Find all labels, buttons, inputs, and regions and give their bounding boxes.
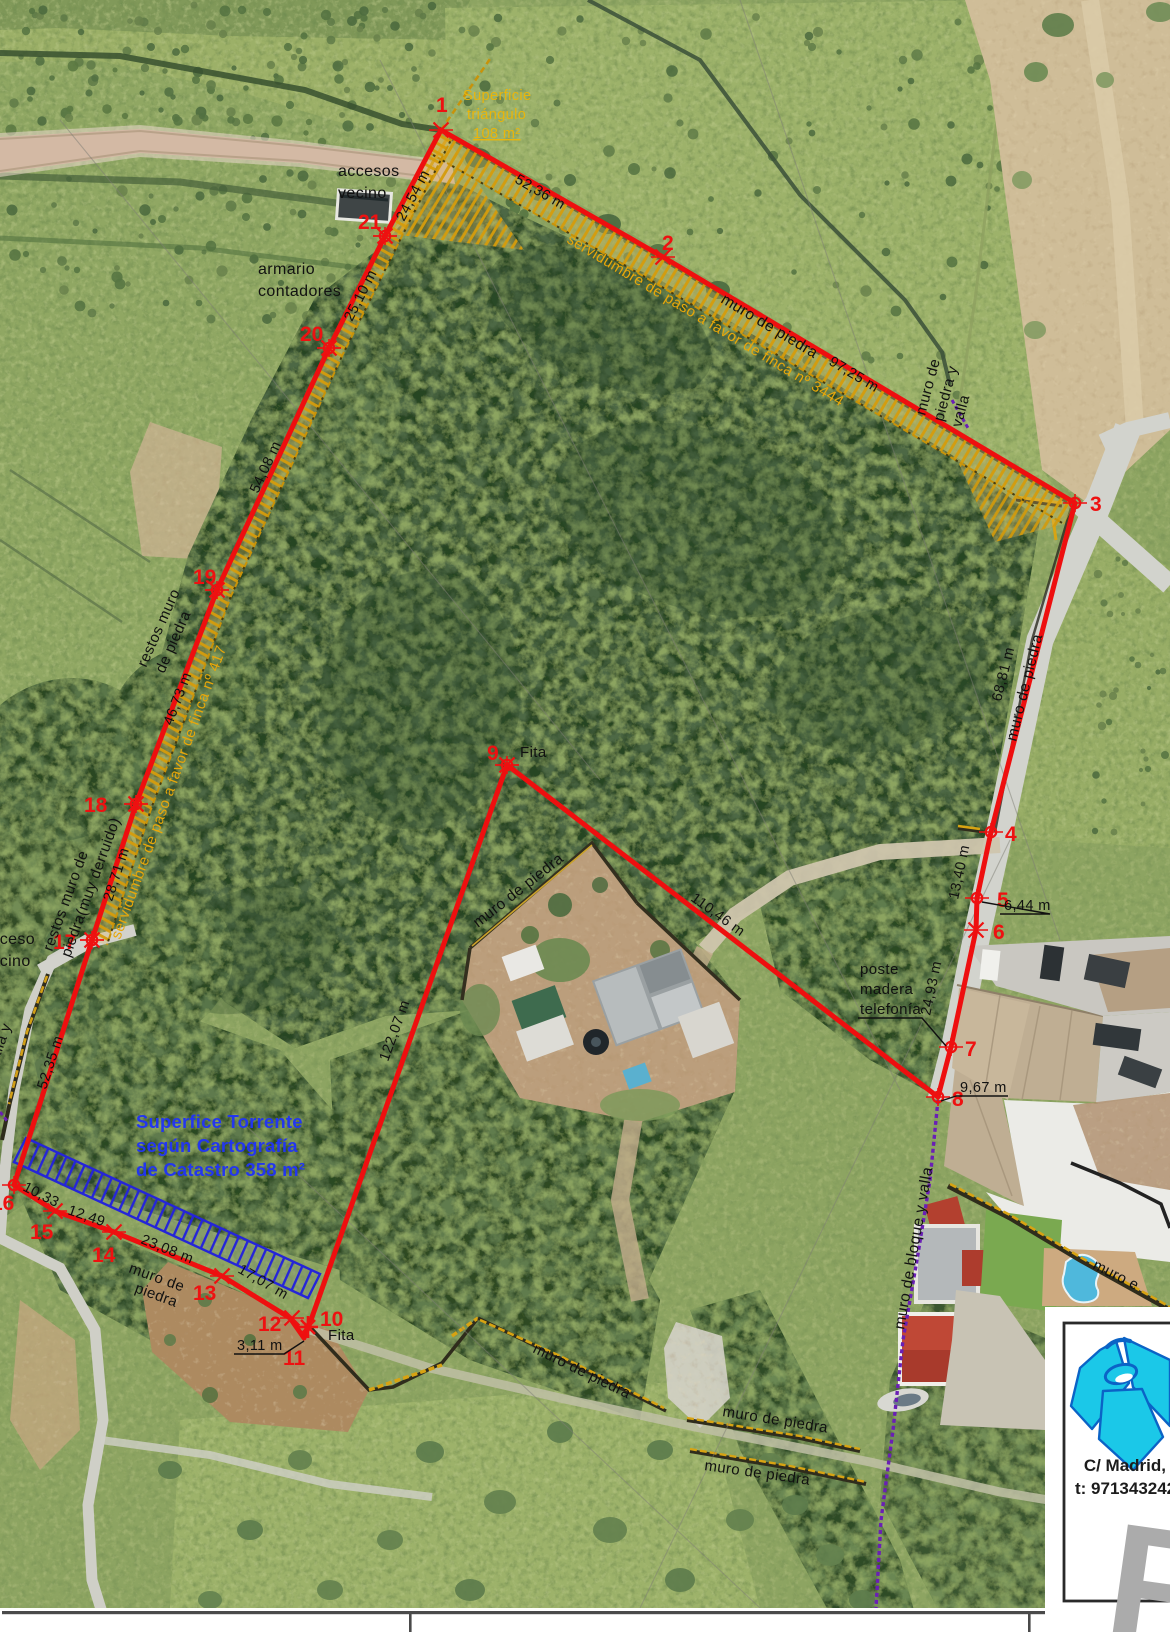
svg-text:de Catastro 358 m²: de Catastro 358 m² [136, 1159, 305, 1180]
svg-text:Fita: Fita [328, 1327, 355, 1344]
svg-text:vecino: vecino [338, 185, 387, 202]
svg-text:según Cartografía: según Cartografía [136, 1135, 298, 1156]
svg-text:13: 13 [193, 1282, 216, 1305]
svg-text:triángulo: triángulo [467, 107, 526, 123]
svg-text:contadores: contadores [258, 283, 341, 300]
svg-text:20: 20 [300, 323, 323, 346]
svg-text:3,11 m: 3,11 m [237, 1338, 283, 1354]
svg-text:Superfice Torrente: Superfice Torrente [136, 1111, 303, 1132]
svg-text:vecino: vecino [0, 953, 31, 970]
svg-text:1: 1 [436, 94, 448, 117]
svg-text:6: 6 [993, 921, 1005, 944]
svg-text:108 m²: 108 m² [473, 126, 521, 142]
svg-text:14: 14 [92, 1244, 116, 1267]
svg-text:acceso: acceso [0, 931, 35, 948]
svg-text:15: 15 [30, 1221, 54, 1244]
svg-text:C/ Madrid,: C/ Madrid, [1084, 1456, 1166, 1475]
svg-text:18: 18 [84, 794, 108, 817]
svg-text:9: 9 [487, 742, 499, 765]
svg-text:2: 2 [662, 232, 674, 255]
svg-text:madera: madera [860, 981, 914, 998]
svg-text:poste: poste [860, 961, 899, 978]
svg-text:4: 4 [1005, 823, 1017, 846]
svg-text:7: 7 [965, 1038, 977, 1061]
svg-text:telefonía: telefonía [860, 1001, 921, 1018]
svg-text:21: 21 [358, 211, 382, 234]
svg-text:9,67 m: 9,67 m [960, 1080, 1007, 1096]
svg-text:Superficie: Superficie [463, 88, 531, 104]
svg-text:3: 3 [1090, 493, 1102, 516]
svg-text:19: 19 [193, 566, 216, 589]
svg-text:6,44 m: 6,44 m [1004, 898, 1051, 914]
svg-text:16: 16 [0, 1192, 14, 1215]
svg-text:Fita: Fita [520, 744, 547, 761]
svg-text:11: 11 [283, 1347, 306, 1370]
svg-text:armario: armario [258, 261, 315, 278]
svg-text:accesos: accesos [338, 163, 400, 180]
svg-text:12: 12 [258, 1313, 281, 1336]
